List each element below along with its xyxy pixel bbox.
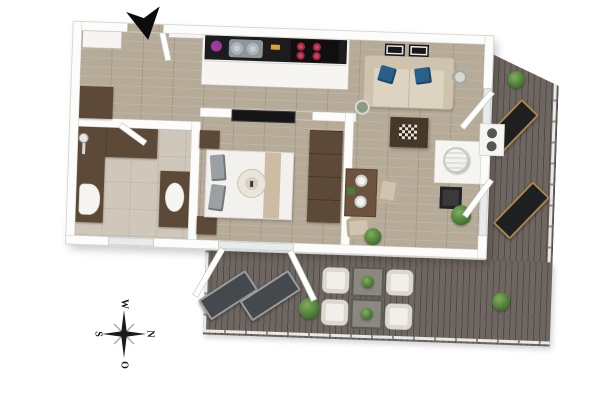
outer-wall-right-c	[478, 236, 487, 258]
sofa-seam	[408, 69, 410, 107]
bedroom-terrace-door-opening	[218, 241, 294, 252]
terrace-bottom	[203, 250, 553, 346]
potted-plant-icon	[492, 292, 511, 311]
planter-hole-icon	[487, 128, 497, 138]
plate-icon	[354, 196, 366, 208]
potted-plant-icon	[508, 71, 526, 89]
potted-plant-icon	[298, 298, 320, 320]
picture-frame-icon	[409, 44, 429, 57]
hall-closet	[78, 86, 113, 119]
armchair-icon	[322, 267, 349, 293]
coffee-table-chess	[390, 117, 429, 148]
compass-label-north: N	[145, 330, 156, 338]
terrace-bottom-railing	[203, 329, 550, 344]
burner-icon	[312, 52, 320, 60]
burner-icon	[313, 43, 321, 51]
sink-bowl-icon	[247, 43, 259, 55]
compass-rose: W S N O	[92, 296, 156, 372]
utensil-icon	[271, 45, 280, 50]
planter-box	[479, 124, 504, 156]
double-bed	[205, 150, 293, 219]
tray-item-icon	[250, 181, 253, 187]
side-table-icon	[353, 269, 382, 296]
cooktop-icon	[290, 39, 339, 63]
breakfast-tray-icon	[238, 169, 266, 197]
table-greens-icon	[347, 187, 355, 194]
bathroom-window	[108, 237, 154, 247]
picture-frame-icon	[385, 44, 405, 57]
bed-runner	[263, 152, 281, 219]
blue-pillow-icon	[414, 67, 432, 85]
bed-pillow-icon	[208, 184, 226, 212]
blue-pillow-icon	[377, 65, 397, 85]
compass-label-east: O	[119, 361, 130, 369]
compass-label-south: S	[93, 331, 104, 337]
compass-label-west: W	[119, 299, 130, 309]
entrance-arrow-icon	[124, 6, 165, 44]
wall-tv-icon	[232, 110, 294, 122]
sofa-arm	[364, 56, 375, 106]
terrace-left-railing	[203, 250, 209, 332]
kitchen-sink-icon	[229, 39, 264, 58]
table-plant-icon	[362, 276, 374, 288]
armchair-icon	[385, 304, 412, 330]
armchair-icon	[386, 270, 413, 296]
terrace-right-railing	[547, 78, 557, 266]
floorplan-render: W S N O	[0, 0, 600, 400]
sun-lounger-icon	[493, 181, 551, 239]
plate-icon	[355, 175, 367, 187]
sink-bowl-icon	[231, 42, 243, 54]
nightstand-icon	[199, 130, 220, 149]
wardrobe	[307, 130, 343, 223]
side-table-icon	[352, 301, 381, 328]
sofa	[364, 56, 454, 109]
terrace-right	[485, 54, 559, 266]
sofa-arm	[443, 59, 454, 109]
kitchen-counter	[202, 34, 350, 89]
dining-table	[345, 169, 377, 216]
dining-chair-icon	[376, 177, 400, 204]
planter-hole-icon	[486, 141, 496, 151]
armchair-icon	[321, 299, 348, 325]
apartment	[66, 22, 493, 259]
table-plant-icon	[360, 308, 372, 320]
burner-icon	[297, 42, 305, 50]
nightstand-icon	[196, 216, 217, 235]
compass-needle-horizontal	[102, 331, 146, 337]
burner-icon	[296, 51, 304, 59]
chessboard-icon	[399, 124, 418, 140]
bed-pillow-icon	[210, 154, 227, 181]
hall-cabinet	[83, 31, 122, 48]
